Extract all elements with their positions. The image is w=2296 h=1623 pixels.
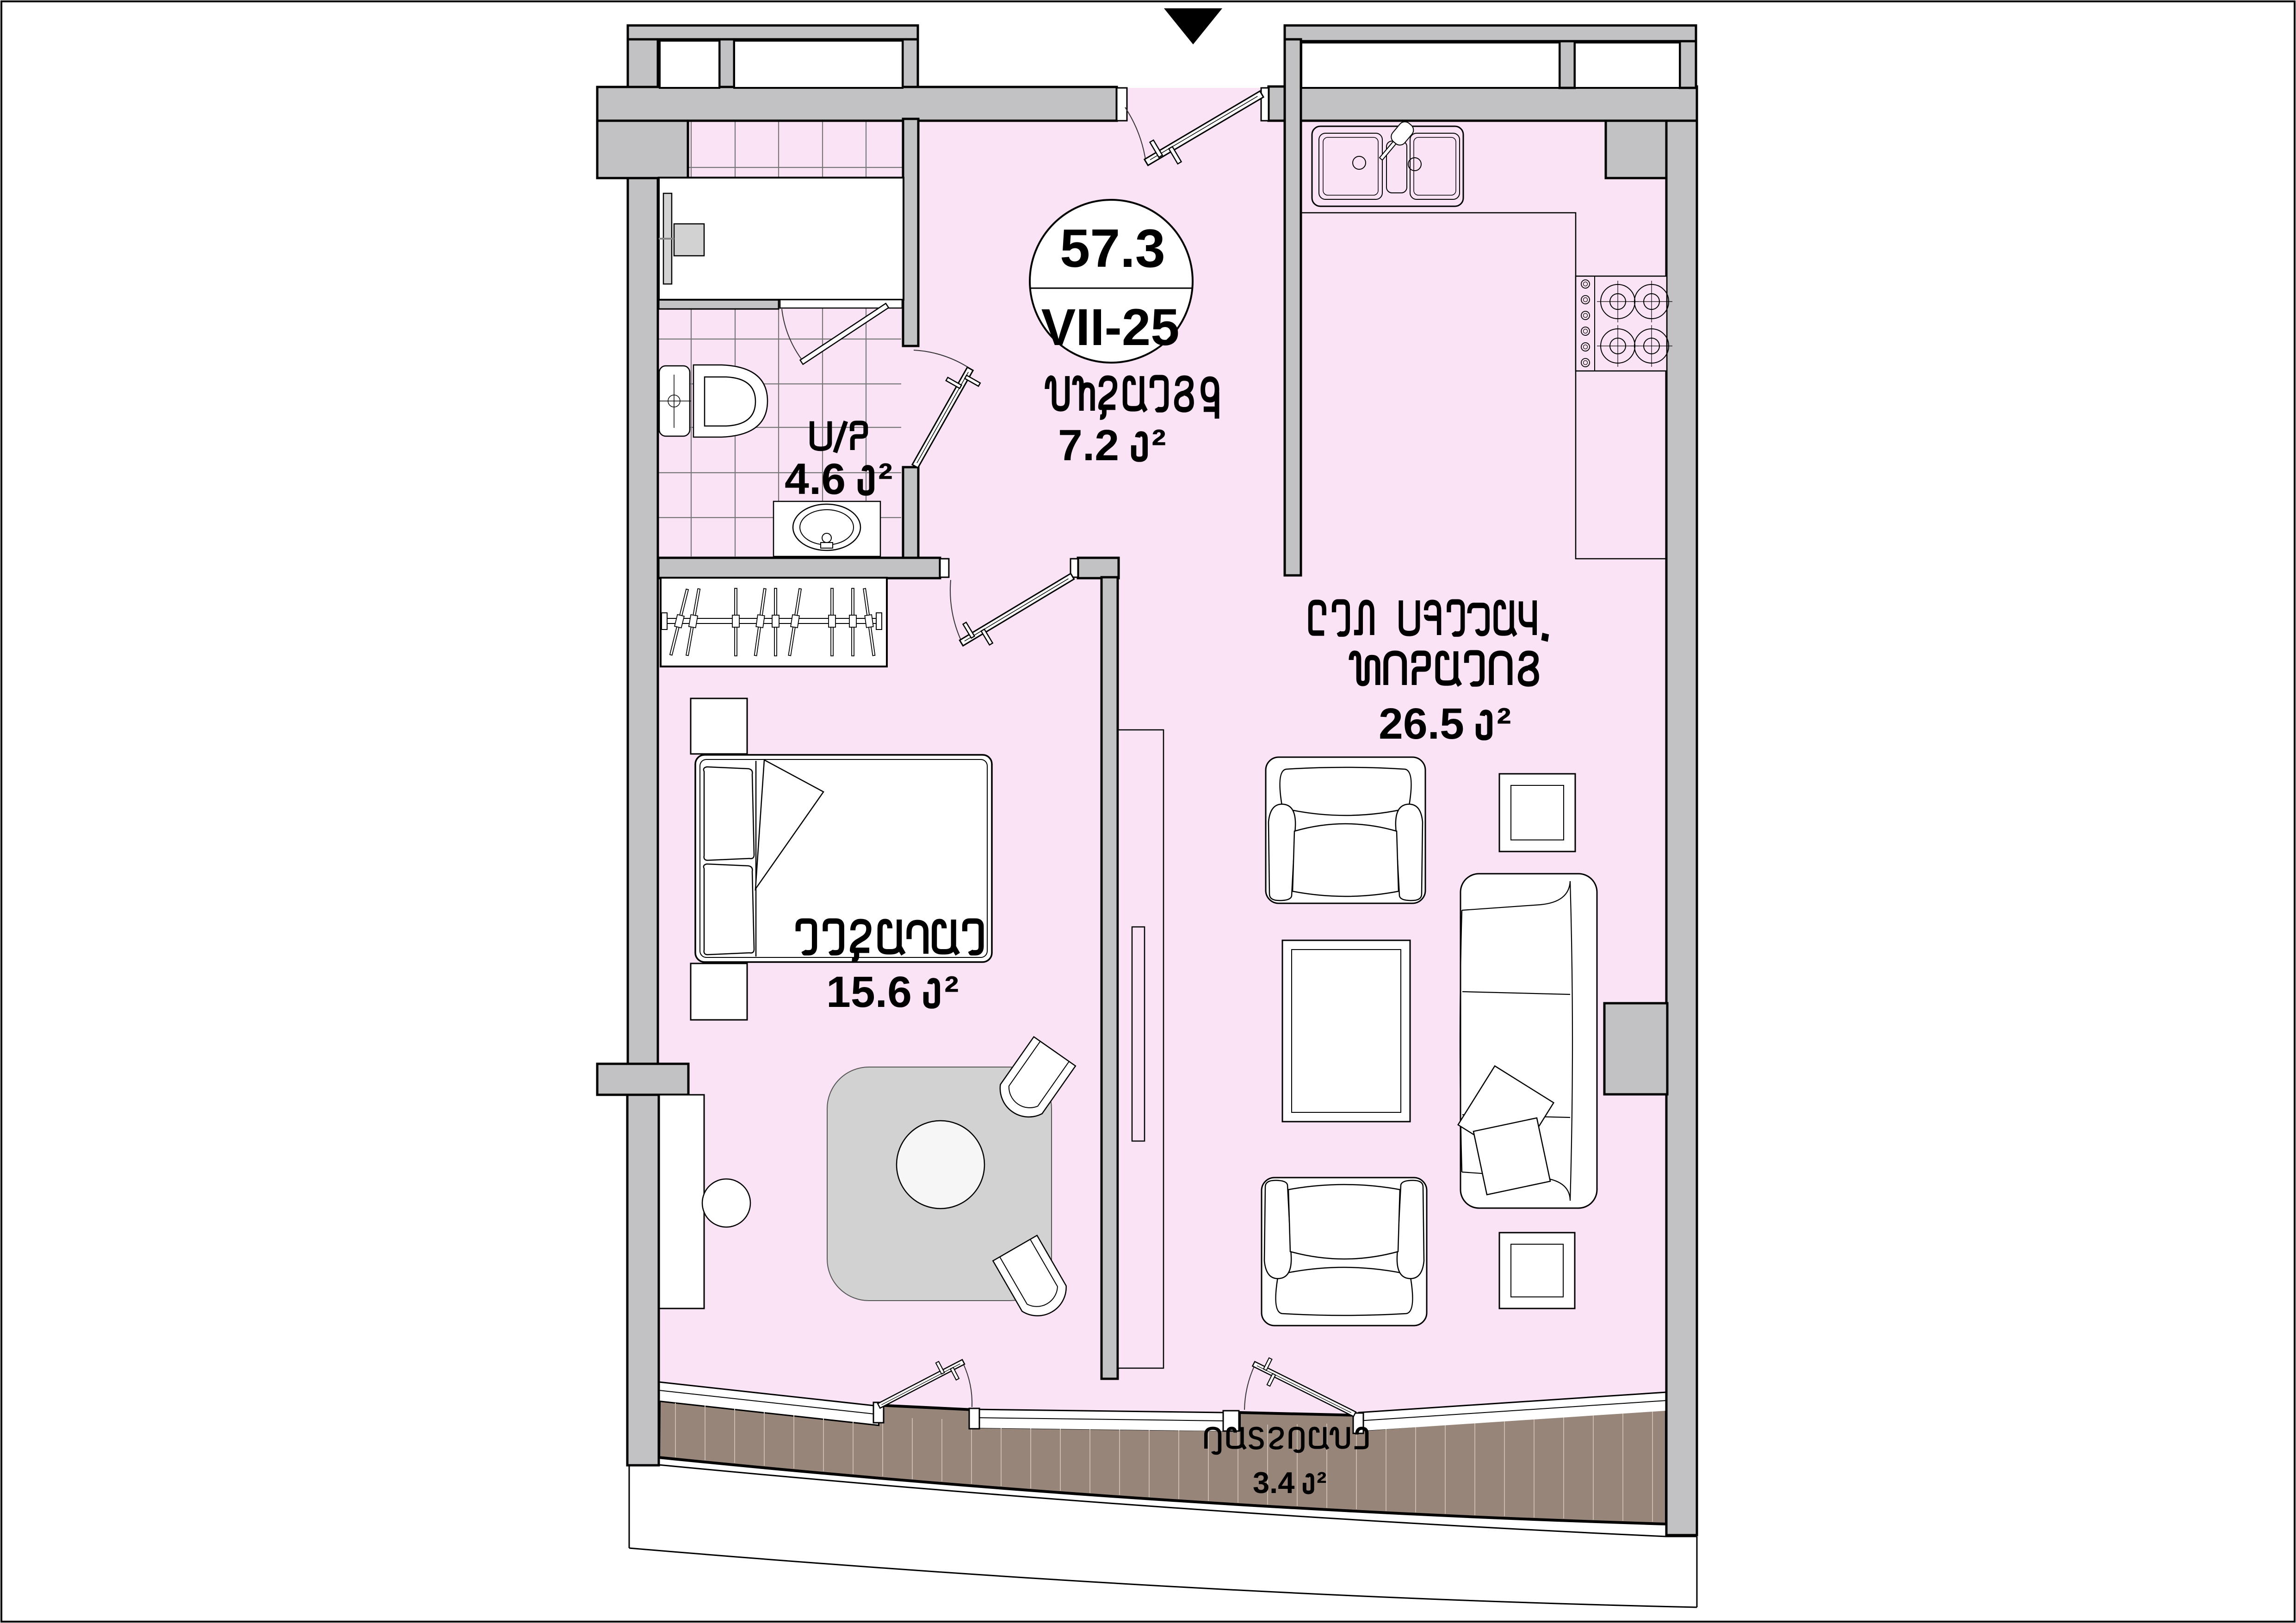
svg-text:²: ² — [1317, 1466, 1327, 1500]
svg-text:VII-25: VII-25 — [1041, 298, 1180, 356]
svg-text:26.5: 26.5 — [1379, 699, 1464, 748]
svg-text:3.4: 3.4 — [1253, 1466, 1294, 1500]
svg-text:²: ² — [944, 968, 959, 1017]
svg-text:²: ² — [1151, 421, 1166, 470]
svg-text:4.6: 4.6 — [785, 455, 846, 504]
svg-text:²: ² — [1497, 699, 1511, 748]
svg-text:57.3: 57.3 — [1060, 218, 1165, 278]
svg-text:15.6: 15.6 — [826, 968, 912, 1017]
svg-text:²: ² — [878, 455, 893, 504]
svg-text:7.2: 7.2 — [1058, 421, 1119, 470]
